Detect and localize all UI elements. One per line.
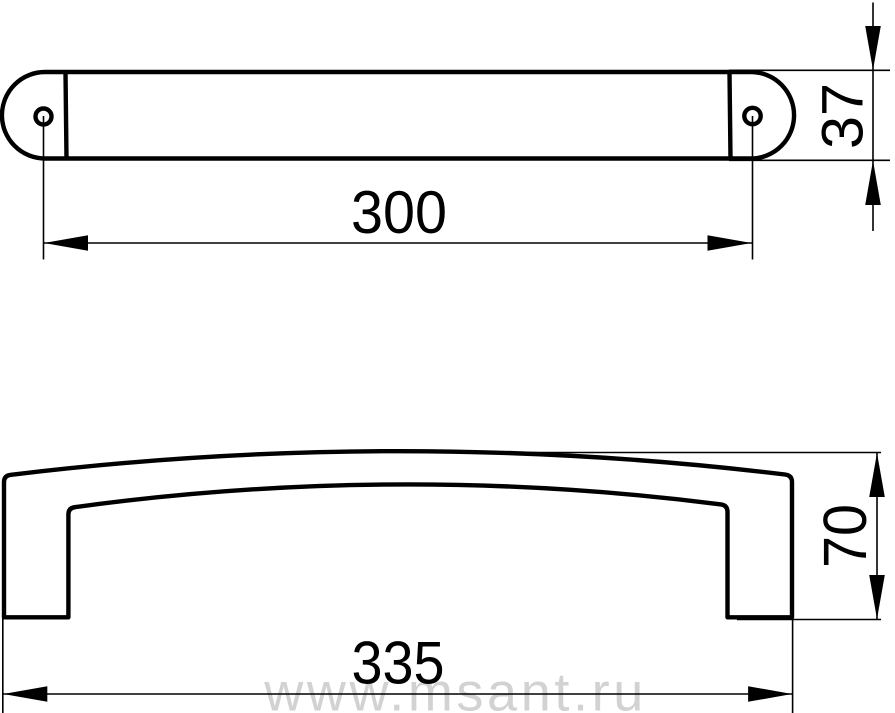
svg-text:37: 37	[811, 83, 876, 149]
svg-text:335: 335	[352, 630, 445, 697]
svg-text:70: 70	[811, 504, 879, 568]
svg-text:300: 300	[351, 179, 447, 246]
